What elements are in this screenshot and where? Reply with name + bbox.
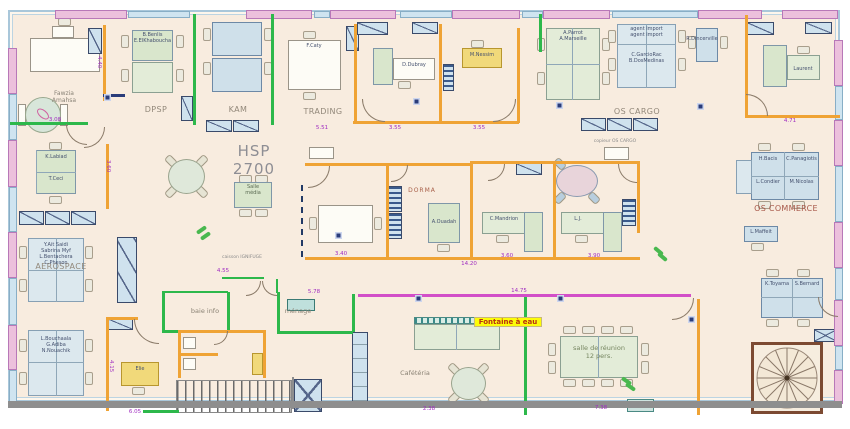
chair-icon bbox=[19, 339, 27, 352]
chair-icon bbox=[601, 326, 614, 334]
wall bbox=[271, 14, 274, 125]
window-segment bbox=[543, 10, 610, 19]
desk bbox=[744, 226, 778, 242]
desk bbox=[763, 45, 787, 87]
chair-icon bbox=[374, 217, 382, 230]
chair-icon bbox=[132, 387, 145, 395]
chair-icon bbox=[19, 246, 27, 259]
window-segment bbox=[8, 140, 17, 187]
wall bbox=[470, 161, 473, 258]
desk bbox=[560, 336, 638, 378]
chair-icon bbox=[49, 196, 62, 204]
chair-icon bbox=[203, 62, 211, 75]
desk bbox=[183, 358, 196, 370]
chair-icon bbox=[309, 217, 317, 230]
cabinet-icon bbox=[233, 120, 259, 132]
chair-icon bbox=[85, 339, 93, 352]
cabinet-icon bbox=[805, 22, 832, 34]
wall bbox=[470, 161, 554, 164]
radiator-segment bbox=[128, 11, 190, 18]
marker-icon bbox=[104, 94, 111, 101]
desk-divider bbox=[761, 297, 823, 298]
window-segment bbox=[55, 10, 127, 19]
radiator-segment bbox=[400, 11, 452, 18]
desk bbox=[212, 58, 262, 92]
desk bbox=[696, 28, 718, 62]
wall bbox=[354, 24, 357, 123]
window-segment bbox=[782, 10, 838, 19]
desk bbox=[121, 362, 159, 386]
stairs-icon bbox=[176, 380, 292, 413]
desk bbox=[524, 212, 543, 252]
cabinet-icon bbox=[352, 332, 368, 402]
wall bbox=[106, 317, 109, 411]
wall bbox=[517, 28, 520, 123]
chair-icon bbox=[641, 343, 649, 356]
chair-icon bbox=[496, 235, 509, 243]
desk-divider bbox=[646, 24, 647, 88]
chair-icon bbox=[548, 361, 556, 374]
desk bbox=[212, 22, 262, 56]
chair-icon bbox=[608, 30, 616, 43]
window-segment bbox=[8, 232, 17, 278]
chair-icon bbox=[19, 372, 27, 385]
desk-divider bbox=[56, 330, 57, 396]
chair-icon bbox=[766, 269, 779, 277]
desk bbox=[603, 212, 622, 252]
marker-icon bbox=[415, 295, 422, 302]
desk bbox=[309, 147, 334, 159]
marker-icon bbox=[697, 103, 704, 110]
dashed-partition bbox=[301, 185, 303, 258]
window-segment bbox=[452, 10, 520, 19]
wall bbox=[277, 331, 353, 334]
cabinet-icon bbox=[747, 22, 774, 35]
dimension-label: 6.05 bbox=[126, 409, 144, 416]
chair-icon bbox=[398, 81, 411, 89]
chair-icon bbox=[49, 142, 62, 150]
chair-icon bbox=[19, 279, 27, 292]
cabinet-icon bbox=[287, 299, 315, 311]
chair-icon bbox=[758, 201, 771, 209]
desk bbox=[414, 324, 500, 350]
chair-icon bbox=[255, 209, 268, 217]
desk bbox=[393, 58, 435, 80]
marker-icon bbox=[557, 295, 564, 302]
chair-icon bbox=[471, 40, 484, 48]
desk bbox=[373, 48, 393, 85]
desk bbox=[561, 212, 605, 234]
chair-icon bbox=[563, 379, 576, 387]
chair-icon bbox=[620, 326, 633, 334]
chair-icon bbox=[563, 326, 576, 334]
wall bbox=[103, 25, 106, 101]
chair-icon bbox=[582, 379, 595, 387]
wall bbox=[305, 257, 388, 260]
desk bbox=[288, 40, 341, 90]
desk-divider bbox=[456, 324, 457, 350]
desk bbox=[736, 160, 752, 194]
round-table bbox=[556, 165, 598, 197]
wall bbox=[277, 292, 280, 334]
cabinet-icon bbox=[357, 22, 388, 35]
cabinet-icon bbox=[581, 118, 606, 131]
wall bbox=[106, 144, 109, 209]
floor-plan: HSP 2700DPSPKAMTRADINGOS CARGOOS COMMERC… bbox=[0, 0, 850, 429]
radiator-segment bbox=[835, 268, 843, 300]
window-segment bbox=[834, 120, 843, 166]
chair-icon bbox=[792, 143, 805, 151]
wall bbox=[386, 163, 389, 259]
chair-icon bbox=[176, 35, 184, 48]
desk bbox=[318, 205, 373, 243]
radiator-segment bbox=[612, 11, 698, 18]
chair-icon bbox=[203, 28, 211, 41]
wall bbox=[358, 294, 691, 297]
round-table bbox=[168, 159, 205, 194]
wall bbox=[263, 330, 266, 378]
chair-icon bbox=[678, 30, 686, 43]
radiator-segment bbox=[835, 346, 843, 370]
marker-icon bbox=[335, 232, 342, 239]
window-segment bbox=[698, 10, 762, 19]
chair-icon bbox=[797, 319, 810, 327]
marker-icon bbox=[556, 102, 563, 109]
desk-divider bbox=[792, 278, 793, 318]
wall bbox=[222, 277, 264, 279]
cabinet-icon bbox=[443, 64, 454, 91]
marker-icon bbox=[688, 316, 695, 323]
wall bbox=[637, 161, 640, 233]
chair-icon bbox=[548, 343, 556, 356]
chair-icon bbox=[85, 279, 93, 292]
chair-icon bbox=[537, 72, 545, 85]
chair-icon bbox=[641, 361, 649, 374]
counter-hatch bbox=[414, 317, 500, 324]
desk-divider bbox=[28, 270, 84, 271]
radiator-segment bbox=[835, 166, 843, 222]
round-table bbox=[451, 367, 486, 400]
desk-divider bbox=[546, 64, 600, 65]
desk bbox=[132, 62, 173, 93]
wall bbox=[178, 353, 218, 356]
desk bbox=[787, 55, 820, 80]
chair-icon bbox=[792, 201, 805, 209]
chair-icon bbox=[608, 58, 616, 71]
wall bbox=[439, 24, 442, 123]
wall bbox=[193, 14, 196, 125]
chair-icon bbox=[602, 72, 610, 85]
cabinet-icon bbox=[206, 120, 232, 132]
chair-icon bbox=[678, 58, 686, 71]
chair-icon bbox=[751, 243, 764, 251]
cabinet-icon bbox=[71, 211, 96, 225]
chair-icon bbox=[575, 235, 588, 243]
chair-icon bbox=[303, 31, 316, 39]
chair-icon bbox=[85, 246, 93, 259]
desk-divider bbox=[751, 176, 819, 177]
desk-divider bbox=[36, 150, 37, 194]
radiator-segment bbox=[9, 94, 17, 140]
window-segment bbox=[834, 370, 843, 404]
desk bbox=[234, 182, 272, 208]
window-segment bbox=[834, 40, 843, 86]
window-segment bbox=[834, 222, 843, 268]
chair-icon bbox=[176, 69, 184, 82]
wall bbox=[143, 410, 179, 413]
chair-icon bbox=[766, 319, 779, 327]
chair-icon bbox=[797, 46, 810, 54]
window-segment bbox=[8, 325, 17, 370]
chair-icon bbox=[582, 326, 595, 334]
wall bbox=[162, 291, 165, 332]
chair-icon bbox=[303, 92, 316, 100]
window-segment bbox=[330, 10, 396, 19]
desk bbox=[428, 203, 460, 243]
cabinet-icon bbox=[412, 22, 438, 34]
desk-divider bbox=[598, 336, 599, 378]
radiator-segment bbox=[9, 278, 17, 325]
wall bbox=[8, 401, 842, 408]
desk-divider bbox=[28, 362, 84, 363]
chair-icon bbox=[688, 36, 696, 49]
wall bbox=[162, 291, 228, 293]
desk bbox=[183, 337, 196, 349]
desk bbox=[482, 212, 526, 234]
chair-icon bbox=[121, 35, 129, 48]
chair-icon bbox=[85, 372, 93, 385]
cabinet-icon bbox=[607, 118, 632, 131]
chair-icon bbox=[121, 69, 129, 82]
chair-icon bbox=[58, 18, 71, 26]
chair-icon bbox=[758, 143, 771, 151]
chair-icon bbox=[239, 209, 252, 217]
cabinet-icon bbox=[117, 237, 137, 303]
wall bbox=[539, 14, 542, 52]
wall bbox=[227, 292, 230, 332]
cabinet-icon bbox=[19, 211, 44, 225]
chair-icon bbox=[437, 244, 450, 252]
wall bbox=[387, 257, 640, 260]
cabinet-icon bbox=[633, 118, 658, 131]
desk bbox=[132, 30, 173, 61]
chair-icon bbox=[797, 269, 810, 277]
wall bbox=[697, 299, 700, 415]
desk-divider bbox=[36, 172, 76, 173]
cabinet-icon bbox=[622, 199, 636, 226]
wall bbox=[553, 161, 556, 259]
cabinet-icon bbox=[516, 163, 542, 175]
window-segment bbox=[246, 10, 312, 19]
desk bbox=[604, 147, 629, 160]
cabinet-icon bbox=[45, 211, 70, 225]
wall bbox=[524, 297, 527, 415]
desk bbox=[252, 353, 263, 375]
radiator-segment bbox=[9, 370, 17, 402]
window-segment bbox=[8, 48, 17, 94]
cabinet-icon bbox=[107, 318, 133, 330]
chair-icon bbox=[601, 379, 614, 387]
wall bbox=[352, 294, 355, 332]
cabinet-icon bbox=[88, 28, 102, 54]
chair-icon bbox=[720, 36, 728, 49]
marker-icon bbox=[413, 98, 420, 105]
wall bbox=[292, 377, 294, 409]
radiator-segment bbox=[9, 187, 17, 232]
desk bbox=[52, 26, 74, 38]
cabinet-icon bbox=[181, 96, 193, 121]
radiator-segment bbox=[314, 11, 330, 18]
desk bbox=[462, 48, 502, 68]
